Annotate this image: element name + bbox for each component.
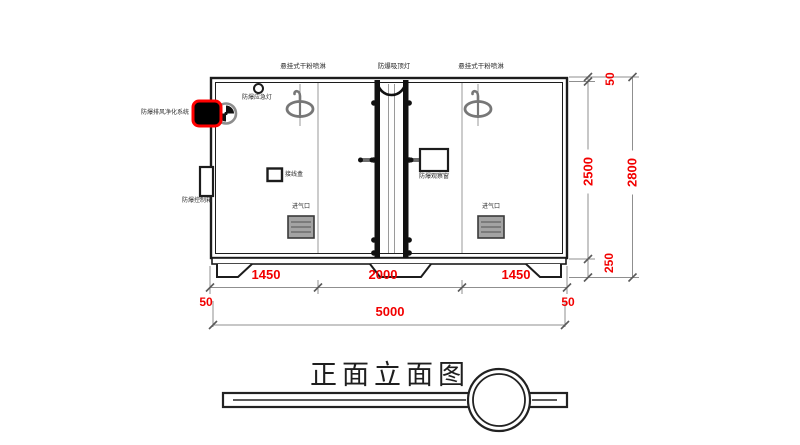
label-air-inlet-right: 进气口 — [473, 204, 509, 211]
drawing-title: 正面立面图 — [302, 353, 478, 392]
junction-box-icon — [268, 169, 283, 182]
control-box-icon — [200, 167, 213, 196]
dim-body-height: 2500 — [582, 150, 595, 194]
label-ceiling-lamp: 防爆吸顶灯 — [363, 63, 425, 70]
label-sprinkler-left: 悬挂式干粉喷淋 — [268, 63, 338, 70]
dim-section-middle: 2000 — [353, 268, 413, 281]
label-sprinkler-right: 悬挂式干粉喷淋 — [446, 63, 516, 70]
purifier-unit-icon — [193, 101, 221, 126]
dim-section-right: 1450 — [486, 268, 546, 281]
dim-section-left: 1450 — [236, 268, 296, 281]
label-purifier-system: 防爆排风净化系统 — [131, 110, 189, 117]
air-inlet-right-icon — [478, 216, 504, 238]
emergency-light-icon — [254, 84, 263, 93]
dim-wall-right: 50 — [555, 296, 581, 308]
label-control-box: 防爆控制箱 — [172, 198, 222, 205]
elevation-drawing-canvas: 悬挂式干粉喷淋 防爆吸顶灯 悬挂式干粉喷淋 防爆应急灯 防爆排风净化系统 防爆控… — [0, 0, 800, 445]
dim-total-width: 5000 — [360, 305, 420, 318]
label-observation-window: 防爆观察窗 — [406, 174, 462, 181]
label-air-inlet-left: 进气口 — [283, 204, 319, 211]
air-inlet-left-icon — [288, 216, 314, 238]
label-junction-box: 接线盒 — [285, 172, 315, 179]
dim-base-height: 250 — [603, 248, 615, 278]
dim-total-height: 2800 — [626, 151, 639, 195]
dim-wall-left: 50 — [193, 296, 219, 308]
dim-roof-thickness: 50 — [604, 68, 616, 90]
label-emergency-light: 防爆应急灯 — [236, 95, 278, 102]
observation-window-icon — [420, 149, 448, 171]
